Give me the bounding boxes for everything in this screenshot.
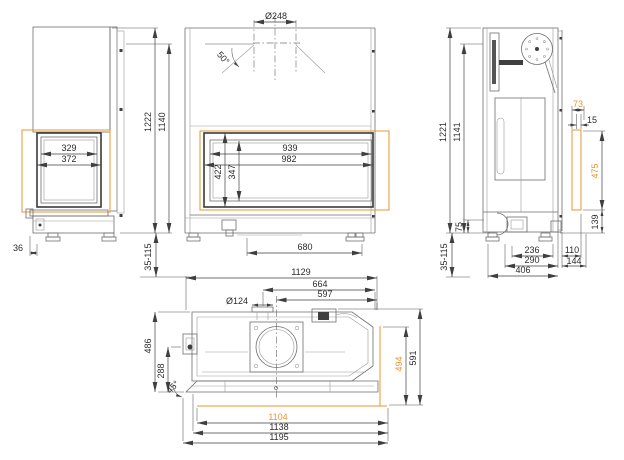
damper-motor-top	[312, 309, 357, 322]
dim-label-front-glass-width-outer: 982	[281, 154, 296, 164]
dim-label-side-glass-width-inner: 329	[61, 143, 76, 153]
dim-label-flue-offset: 597	[317, 289, 332, 299]
air-intake-stub	[252, 307, 273, 320]
dim-label-side-offset: 36	[13, 243, 23, 253]
angle-arc	[232, 48, 239, 67]
dim-label-glass-offset: 73	[573, 99, 583, 109]
front-bracket	[551, 221, 561, 232]
technical-drawing: 329372361222114035-115Ø24850°93998242234…	[0, 0, 624, 460]
dim-label-leg-range-right: 35-115	[439, 243, 449, 270]
latch-mechanism	[222, 220, 302, 236]
dim-label-total-width-top: 1195	[269, 432, 288, 442]
side-latch-top	[183, 334, 197, 354]
front-frame-strip	[110, 27, 117, 211]
dim-label-total-height-right: 1221	[438, 122, 448, 142]
front-frame-strip-2	[117, 31, 124, 213]
dim-label-front-depth-lower: 144	[566, 256, 581, 266]
dim-label-total-height-left: 1222	[143, 112, 153, 132]
dim-label-front-glass-height-outer: 422	[213, 164, 223, 179]
right-side-view	[483, 28, 581, 241]
side-glass-outline-right	[572, 130, 581, 210]
feet	[46, 233, 116, 241]
dim-label-frame-offset: 15	[587, 115, 597, 125]
screw-dot	[560, 109, 563, 112]
dim-label-top-width: 1129	[291, 267, 310, 277]
screw-dot	[372, 215, 375, 218]
dim-label-side-glass-width-outer: 372	[61, 154, 76, 164]
screw-dot	[372, 110, 375, 113]
dim-label-side-glass-depth: 475	[590, 163, 600, 178]
cross-bar	[499, 60, 523, 65]
inner-wall-top	[197, 317, 368, 376]
screw-dot	[560, 37, 563, 40]
base-box	[33, 216, 114, 233]
dim-label-glass-depth-top: 494	[394, 356, 404, 371]
screw-dot	[275, 387, 278, 390]
screw-dot	[120, 49, 123, 52]
screw-dot	[120, 214, 123, 217]
flue-stub	[205, 15, 325, 80]
dim-label-flue-angle: 50°	[215, 50, 232, 67]
screw-dot	[120, 108, 123, 111]
top-view	[183, 296, 387, 406]
dim-label-base-depth: 290	[524, 255, 539, 265]
sill	[30, 210, 108, 216]
screw-dot	[372, 50, 375, 53]
dim-label-frame-height-right: 1141	[452, 122, 462, 141]
base-knob	[39, 224, 42, 227]
dim-label-frame-height-left: 1140	[157, 112, 167, 131]
front-frame-top	[186, 381, 378, 392]
flue-collar-top	[250, 296, 303, 398]
dim-label-front-glass-width-inner: 939	[282, 143, 297, 153]
dim-label-top-depth-inner: 288	[156, 363, 166, 378]
feet	[486, 233, 552, 241]
dim-label-base-width: 680	[297, 242, 312, 252]
dim-label-plinth-height: 75	[454, 222, 464, 232]
flue-tilt-line-right	[296, 45, 325, 73]
dim-label-frame-width-top: 1138	[269, 422, 288, 432]
dim-label-flue-diameter: Ø248	[265, 11, 287, 21]
back-panel	[33, 27, 110, 132]
lower-box	[507, 217, 527, 232]
drawing-canvas: 329372361222114035-115Ø24850°93998242234…	[0, 0, 624, 460]
dimension-labels: 329372361222114035-115Ø24850°93998242234…	[13, 11, 600, 442]
dim-label-depth-upper: 236	[524, 245, 539, 255]
damper-wheel	[522, 34, 553, 65]
screw-dot	[560, 215, 563, 218]
dim-label-total-depth: 406	[515, 265, 530, 275]
dim-label-intake-offset: 664	[312, 279, 327, 289]
left-side-view	[22, 27, 124, 241]
dim-label-glass-width-top: 1104	[268, 412, 287, 422]
side-panel	[495, 98, 545, 180]
dim-label-total-depth-top: 591	[408, 350, 418, 365]
dim-label-leg-range-left: 35-115	[143, 243, 153, 270]
dim-label-intake-diameter: Ø124	[226, 296, 248, 306]
dim-label-front-glass-height-inner: 347	[227, 164, 237, 179]
dim-label-top-depth-outer: 486	[143, 338, 153, 353]
handle-slot	[497, 118, 504, 174]
dim-label-base-height-right: 139	[590, 214, 600, 229]
dim-label-front-depth-upper: 110	[565, 245, 579, 255]
dim-label-corner-angle: 45°	[165, 378, 182, 395]
front-view	[185, 15, 389, 241]
feet	[187, 233, 364, 241]
